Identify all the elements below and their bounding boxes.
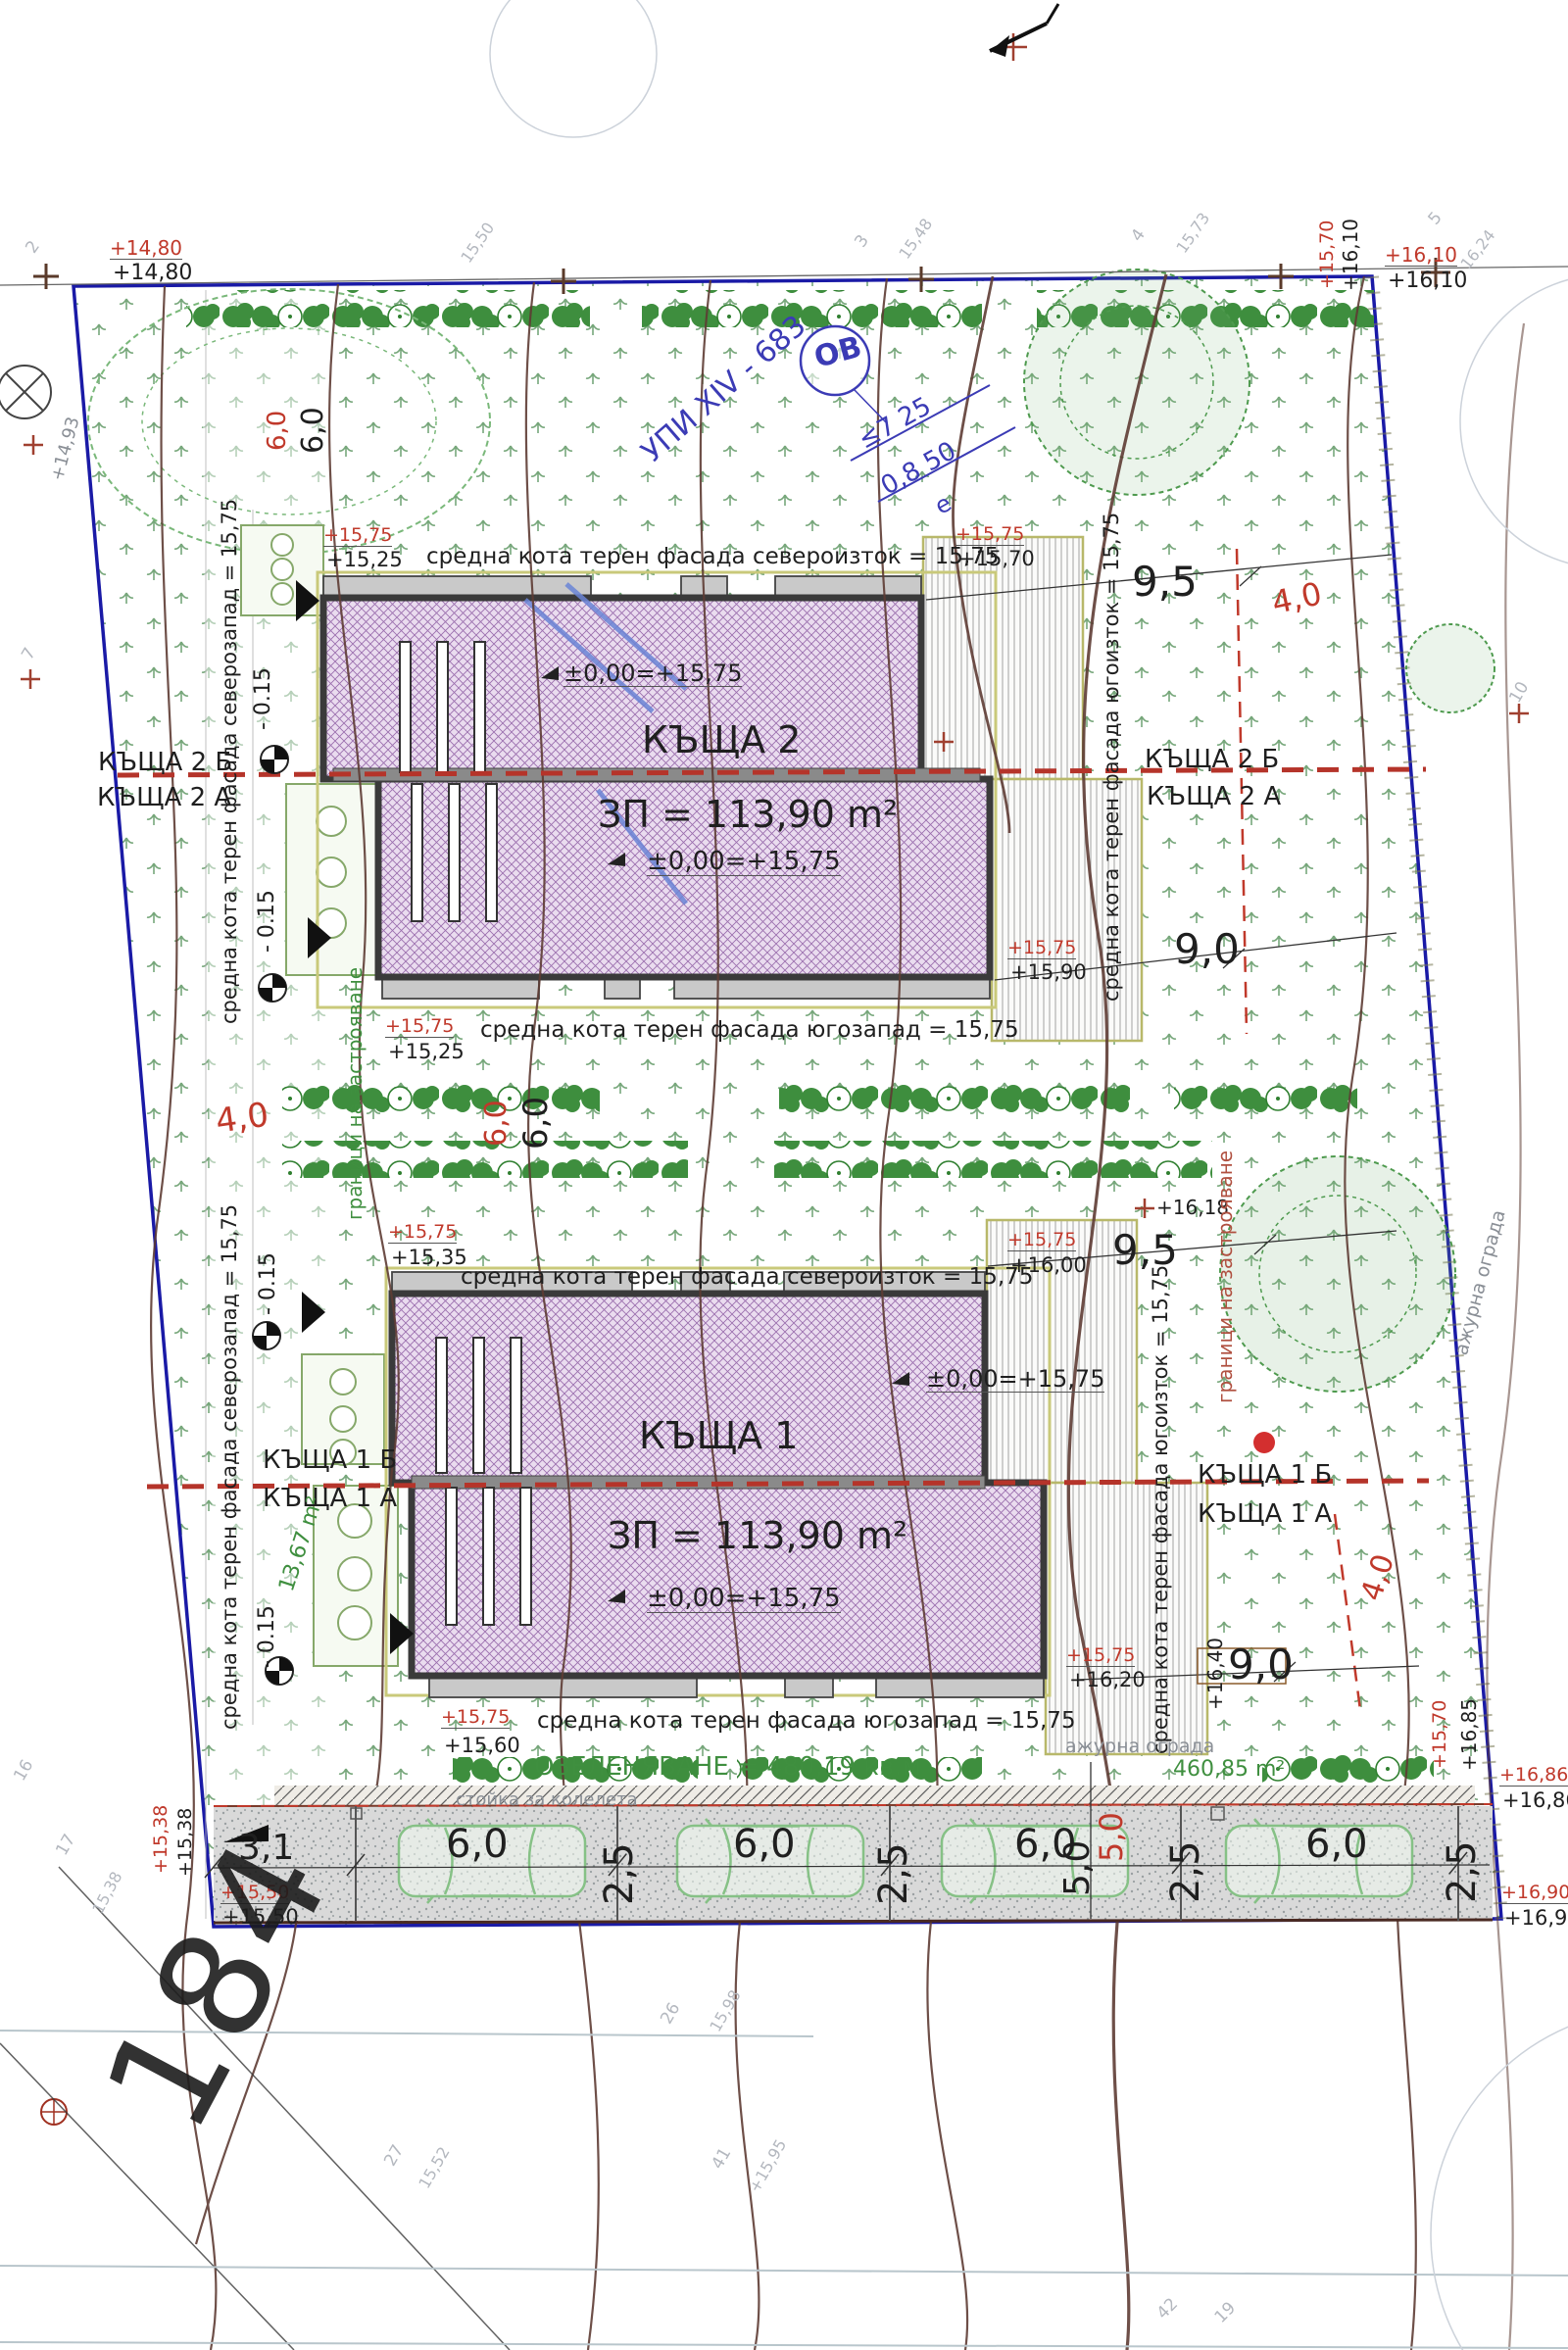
house1-unit-a-left: КЪЩА 1 А: [263, 1486, 397, 1511]
facade-ne-house1: средна кота терен фасада североизток = 1…: [461, 1266, 1033, 1289]
dim-40-midband: 4,0: [214, 1098, 270, 1138]
dim-50-red: 5,0: [1096, 1812, 1127, 1862]
elev-1640-vertical: +16,40: [1205, 1638, 1225, 1710]
dim-90-house1: 9,0: [1228, 1644, 1294, 1686]
house2-name: КЪЩА 2: [642, 721, 801, 759]
facade-sw-house1: средна кота терен фасада югозапад = 15,7…: [537, 1710, 1076, 1733]
house1-unit-a-right: КЪЩА 1 А: [1198, 1501, 1332, 1527]
elev-h1-swcorner-black: +15,60: [444, 1736, 520, 1756]
site-plan: УПИ XIV - 683 ОВ ≤7 25 0,8 50 е +14,80 +…: [0, 0, 1568, 2350]
elev-1690-black: +16,90: [1504, 1908, 1568, 1929]
level-h1-upper: ±0,00=+15,75: [926, 1367, 1104, 1393]
elev-h2-swcorner-black: +15,25: [388, 1042, 465, 1062]
facade-nw-house1: средна кота терен фасада северозапад = 1…: [220, 1204, 240, 1730]
level-h2-lower: ±0,00=+15,75: [647, 849, 841, 876]
elev-h2-nwcorner-red: +15,75: [323, 526, 392, 547]
landscaping-label: ОЗЕЛЕНЯВАНЕ = 480,19 кв.м: [534, 1754, 921, 1780]
elev-br-black-1620: +16,20: [1069, 1670, 1146, 1690]
dim-95-house2: 9,5: [1132, 562, 1198, 603]
dim-60-mid-red: 6,0: [482, 1100, 512, 1147]
elev-h2-terrace-black: +15,70: [958, 549, 1035, 569]
dim-25-3: 2,5: [1166, 1840, 1205, 1903]
building-limits-green: граници на застрояване: [345, 967, 365, 1220]
elev-h1-terrace-red: +15,75: [1007, 1231, 1076, 1251]
house-2: [318, 572, 996, 1007]
elev-corner-ne-black: +16,10: [1388, 270, 1467, 292]
elev-corner-nw-red: +14,80: [110, 238, 182, 260]
dim-60-stall1: 6,0: [446, 1825, 509, 1864]
facade-se-house2: средна кота терен фасада югоизток = 15,7…: [1102, 513, 1122, 1002]
elev-tr-vert-black: +16,10: [1341, 219, 1360, 291]
facade-nw-house2: средна кота терен фасада северозапад = 1…: [220, 499, 240, 1024]
dim-60-mid-black: 6,0: [519, 1097, 553, 1150]
elev-1538-red-vert: +15,38: [152, 1805, 171, 1874]
house1-unit-b-right: КЪЩА 1 Б: [1198, 1462, 1332, 1488]
house1-name: КЪЩА 1: [639, 1417, 798, 1454]
offset-015-4: - 0.15: [257, 1605, 278, 1668]
elev-1690-red: +16,90: [1501, 1884, 1568, 1904]
house1-unit-b-left: КЪЩА 1 Б: [263, 1447, 397, 1473]
facade-ne-house2: средна кота терен фасада североизток = 1…: [426, 546, 999, 568]
house2-unit-b-left: КЪЩА 2 Б: [98, 750, 232, 775]
level-h1-lower: ±0,00=+15,75: [647, 1586, 841, 1613]
elev-h2-nwcorner-black: +15,25: [326, 550, 403, 570]
offset-015-1: - 0.15: [253, 667, 274, 730]
elev-tr-vert-red: +15,70: [1318, 220, 1337, 289]
elev-1686-black: +16,86: [1502, 1790, 1568, 1811]
red-dot: [1253, 1432, 1275, 1453]
elev-h1-swcorner-red: +15,75: [441, 1708, 510, 1729]
offset-015-2: - 0.15: [257, 890, 278, 953]
dim-50-black: 5,0: [1060, 1840, 1096, 1896]
dim-60-topleft-red: 6,0: [265, 411, 290, 451]
north-arrow: [990, 4, 1058, 57]
elev-h1-terrace-black: +16,00: [1010, 1255, 1087, 1276]
elev-h1-nwcorner-black: +15,35: [391, 1248, 467, 1268]
bike-rack-label: стойка за колелета: [456, 1791, 638, 1809]
dim-95-house1: 9,5: [1112, 1230, 1178, 1271]
dim-25-1: 2,5: [600, 1842, 639, 1905]
dim-25-2: 2,5: [874, 1842, 913, 1905]
elev-corner-ne-red: +16,10: [1385, 245, 1457, 267]
elev-h2-se-red: +15,75: [1007, 939, 1076, 959]
area-right-label: 460,85 m²: [1173, 1759, 1285, 1781]
elev-h2-terrace-red: +15,75: [955, 525, 1024, 546]
house1-area: ЗП = 113,90 m²: [608, 1517, 907, 1554]
elev-h2-se-black: +15,90: [1010, 962, 1087, 983]
elev-corner-nw-black: +14,80: [113, 263, 192, 284]
building-limits-red: граници на застрояване: [1215, 1151, 1235, 1403]
elev-br-red-1575: +15,75: [1066, 1646, 1135, 1667]
house2-unit-b-right: КЪЩА 2 Б: [1145, 747, 1279, 772]
parking-strip: [205, 1762, 1493, 1923]
dim-60-stall4: 6,0: [1305, 1825, 1368, 1864]
level-h2-upper: ±0,00=+15,75: [563, 661, 742, 687]
dim-90-house2: 9,0: [1174, 929, 1240, 970]
house2-area: ЗП = 113,90 m²: [598, 796, 898, 833]
facade-se-house1: средна кота терен фасада югоизток = 15,7…: [1151, 1265, 1171, 1754]
facade-sw-house2: средна кота терен фасада югозапад = 15,7…: [480, 1019, 1019, 1042]
elev-right-1685-vert: +16,85: [1459, 1698, 1479, 1771]
elev-h2-swcorner-red: +15,75: [385, 1017, 454, 1038]
elev-right-1570-vert: +15,70: [1431, 1700, 1449, 1769]
dim-60-topleft-black: 6,0: [299, 407, 328, 454]
house2-unit-a-right: КЪЩА 2 А: [1147, 784, 1281, 809]
elev-1686-red: +16,86: [1499, 1766, 1568, 1787]
house2-unit-a-left: КЪЩА 2 А: [97, 785, 231, 810]
dim-40-house2: 4,0: [1269, 577, 1324, 618]
dim-60-stall2: 6,0: [733, 1825, 796, 1864]
dim-25-4: 2,5: [1443, 1840, 1482, 1903]
elev-h1-nwcorner-red: +15,75: [388, 1223, 457, 1244]
fence-label-horizontal: ажурна ограда: [1065, 1738, 1214, 1756]
offset-015-3: - 0.15: [258, 1252, 279, 1315]
